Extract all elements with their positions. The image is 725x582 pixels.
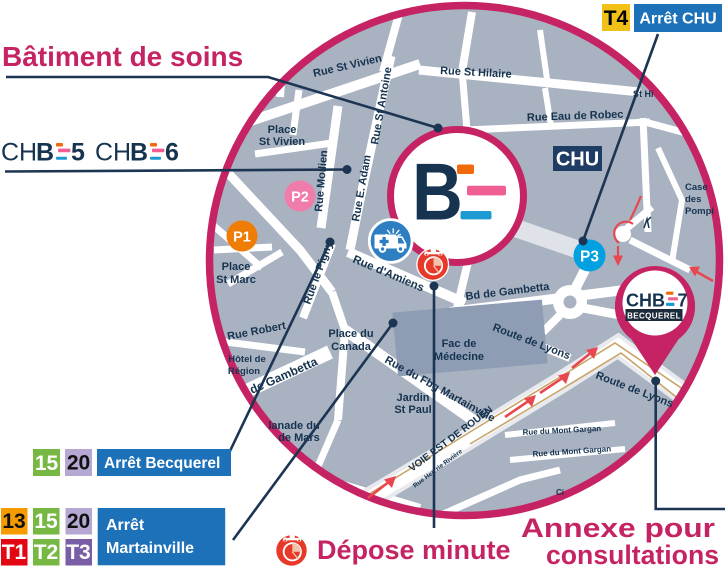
svg-text:Canada: Canada	[331, 341, 372, 353]
svg-text:Martainville: Martainville	[106, 540, 194, 557]
svg-text:Jardin: Jardin	[396, 392, 429, 404]
svg-text:Pompi: Pompi	[685, 206, 714, 217]
svg-text:6: 6	[165, 138, 179, 166]
svg-text:13: 13	[2, 510, 25, 533]
svg-text:15: 15	[34, 510, 58, 533]
svg-text:Arrêt Becquerel: Arrêt Becquerel	[104, 455, 220, 472]
svg-text:P2: P2	[291, 190, 309, 206]
svg-text:Place: Place	[222, 261, 251, 273]
svg-text:T2: T2	[34, 541, 59, 564]
svg-text:T1: T1	[2, 541, 27, 564]
svg-text:Fac de: Fac de	[442, 338, 477, 350]
svg-text:20: 20	[67, 510, 90, 533]
svg-text:St Paul: St Paul	[394, 404, 431, 416]
svg-text:Case: Case	[685, 182, 708, 193]
svg-text:Place du: Place du	[328, 328, 373, 340]
svg-text:T3: T3	[66, 541, 91, 564]
svg-text:Dépose minute: Dépose minute	[317, 535, 511, 565]
svg-text:Bâtiment de soins: Bâtiment de soins	[2, 41, 243, 72]
svg-text:CHU: CHU	[556, 149, 599, 171]
svg-text:St Marc: St Marc	[216, 274, 256, 286]
svg-text:B: B	[412, 147, 463, 238]
svg-text:P1: P1	[233, 230, 251, 246]
svg-text:de Mars: de Mars	[278, 432, 320, 444]
svg-text:5: 5	[71, 138, 85, 166]
svg-text:consultations: consultations	[546, 540, 719, 570]
svg-text:CHB: CHB	[626, 291, 665, 311]
svg-text:P3: P3	[580, 249, 599, 266]
svg-text:Arrêt: Arrêt	[106, 517, 145, 534]
svg-text:St Vivien: St Vivien	[259, 136, 306, 148]
svg-text:Annexe pour: Annexe pour	[521, 513, 716, 543]
svg-text:T4: T4	[604, 7, 629, 30]
svg-text:20: 20	[67, 452, 90, 475]
svg-text:Arrêt CHU: Arrêt CHU	[639, 11, 716, 28]
svg-text:Médecine: Médecine	[434, 351, 484, 363]
svg-text:des: des	[685, 194, 701, 205]
svg-text:lanade du: lanade du	[268, 420, 319, 432]
svg-text:Place: Place	[268, 124, 297, 136]
svg-text:15: 15	[35, 452, 59, 475]
svg-text:BECQUEREL: BECQUEREL	[627, 312, 681, 321]
svg-text:Région: Région	[228, 366, 260, 377]
svg-text:Hôtel de: Hôtel de	[228, 354, 265, 365]
svg-text:Ci: Ci	[556, 488, 564, 497]
svg-text:7: 7	[678, 291, 688, 311]
